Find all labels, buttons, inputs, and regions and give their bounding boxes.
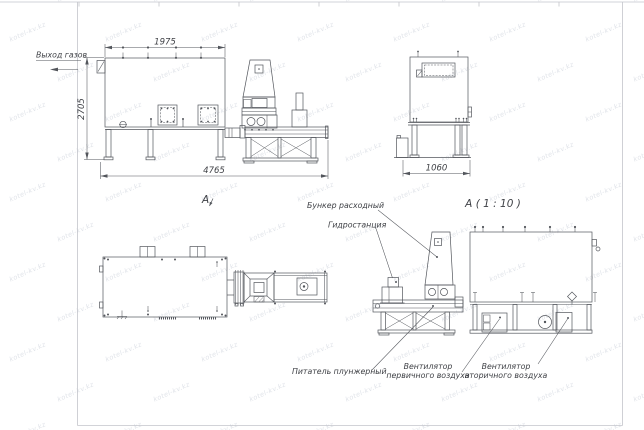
conveyor-trestle-side <box>243 138 318 164</box>
under-frame-detail <box>470 292 597 333</box>
view-a-arrow-icon <box>210 202 213 206</box>
primary-air-fan <box>482 313 507 332</box>
end-hatch <box>417 63 456 77</box>
secondary-fan-label-line1: Вентилятор <box>482 362 531 371</box>
end-cabinet <box>397 136 409 158</box>
gas-outlet-stub <box>97 61 105 74</box>
plan-edge-dots <box>104 258 227 317</box>
end-side-bracket <box>468 107 472 117</box>
feeder-detail <box>373 285 463 312</box>
detail-view-a: А ( 1 : 10 ) <box>373 198 600 335</box>
gas-flow-arrow-icon <box>50 68 58 72</box>
view-a-marker: А <box>201 194 213 206</box>
rail-pin-marks <box>473 293 597 303</box>
detail-view-title: А ( 1 : 10 ) <box>464 198 521 210</box>
secondary-fan-label-line2: вторичного воздуха <box>465 371 548 380</box>
lifting-hook <box>592 240 600 252</box>
feeder-plan <box>227 270 244 306</box>
feeder-trestle-detail <box>378 312 455 335</box>
end-elevation-view: 1060 <box>394 51 472 177</box>
feeder-label: Питатель плунжерный <box>292 367 387 376</box>
secondary-air-fan <box>539 313 573 333</box>
hopper-detail <box>425 232 453 285</box>
gas-outlet-label: Выход газов <box>36 51 88 60</box>
furnace-body <box>105 58 225 127</box>
dim-1975-text: 1975 <box>154 38 176 48</box>
plan-position-pins <box>147 261 218 312</box>
technical-drawing: 1975 2705 4765 Выход газов <box>0 0 644 430</box>
dim-4765-text: 4765 <box>203 166 225 176</box>
end-legs <box>410 125 469 158</box>
drawing-sheet: kotel-kv.kzkotel-kv.kzkotel-kv.kzkotel-k… <box>0 0 644 430</box>
sheet-frame <box>0 2 644 426</box>
feeder-housing-side <box>242 97 277 131</box>
dim-1975: 1975 <box>105 38 225 59</box>
dim-4765: 4765 <box>101 140 329 179</box>
frame-plan <box>274 271 327 305</box>
primary-fan-label-line1: Вентилятор <box>404 362 453 371</box>
furnace-body-detail <box>470 226 600 302</box>
furnace-body-plan <box>103 257 227 317</box>
dim-1060: 1060 <box>403 160 470 177</box>
support-table <box>104 130 225 160</box>
dim-2705-text: 2705 <box>77 98 87 120</box>
side-elevation-view <box>97 58 328 163</box>
hopper-plan <box>244 273 274 302</box>
valve-diamond-icon <box>568 292 577 305</box>
floor-anchor-symbol <box>117 311 127 320</box>
view-a-letter: А <box>201 194 209 206</box>
furnace-body-end <box>410 57 468 122</box>
side-hatch-1 <box>158 105 177 125</box>
hopper-label: Бункер расходный <box>307 201 384 210</box>
hydraulic-station <box>380 278 405 304</box>
plan-view: А <box>100 194 328 319</box>
hopper-side <box>243 60 275 97</box>
primary-fan-label-line2: первичного воздуха <box>386 371 469 380</box>
detail-callouts: Бункер расходный Гидростанция Питатель п… <box>292 201 568 380</box>
dim-1060-text: 1060 <box>426 164 448 174</box>
hydraulic-label: Гидростанция <box>328 221 387 230</box>
conveyor-trough-side <box>245 93 328 139</box>
side-hatch-2 <box>198 105 218 125</box>
gas-outlet-callout: Выход газов <box>36 51 88 72</box>
